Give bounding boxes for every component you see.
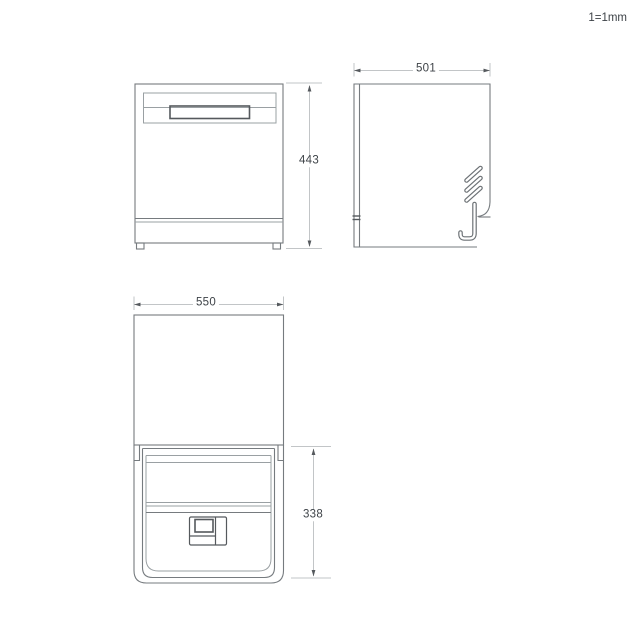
side-corner-curve xyxy=(478,202,491,217)
plan-door-outer-outline xyxy=(134,445,284,583)
scale-note: 1=1mm xyxy=(588,12,627,26)
front-view-drawing xyxy=(135,84,283,249)
side-depth-label: 501 xyxy=(413,63,439,75)
side-body-outline xyxy=(354,84,490,247)
drain-hose-detail xyxy=(461,168,481,239)
plan-tray-inner xyxy=(146,456,271,572)
arrow-right-icon xyxy=(277,303,284,307)
plan-door-depth-label: 338 xyxy=(300,509,326,521)
arrow-left-icon xyxy=(134,303,141,307)
arrow-left-icon xyxy=(354,69,361,73)
arrow-down-icon xyxy=(312,570,316,577)
front-left-foot xyxy=(137,243,145,249)
plan-view-drawing xyxy=(134,315,284,583)
side-view-drawing xyxy=(353,84,491,247)
drawing-svg xyxy=(0,0,640,640)
plan-right-notch xyxy=(278,445,283,461)
front-right-foot xyxy=(273,243,281,249)
arrow-up-icon xyxy=(308,85,312,92)
door-latch-detail xyxy=(190,517,227,545)
latch-window xyxy=(195,520,213,533)
plan-left-notch xyxy=(135,445,140,461)
technical-drawing-canvas: 443 501 550 338 1=1mm xyxy=(0,0,640,640)
front-height-label: 443 xyxy=(296,155,322,167)
plan-width-label: 550 xyxy=(193,297,219,309)
plan-body-outline xyxy=(134,315,284,445)
arrow-up-icon xyxy=(312,449,316,456)
arrow-down-icon xyxy=(308,241,312,248)
arrow-right-icon xyxy=(484,69,491,73)
